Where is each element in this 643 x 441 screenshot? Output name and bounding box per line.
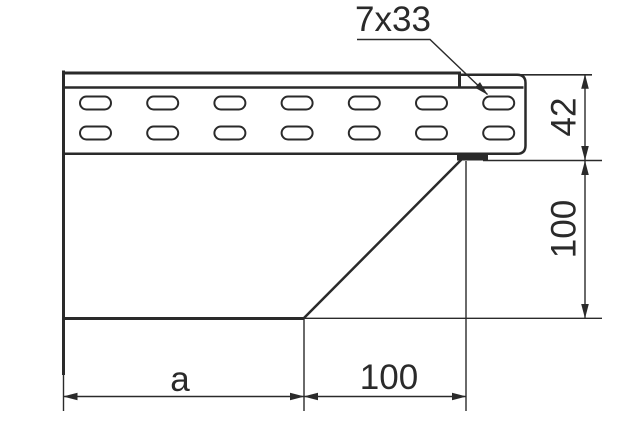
dim-a-label: a	[170, 360, 190, 399]
perforated-rail	[62, 73, 592, 161]
slot	[147, 127, 178, 140]
slot	[349, 97, 380, 110]
taper-edge	[304, 159, 462, 318]
dimension-a: a	[64, 360, 305, 399]
slot	[416, 127, 447, 140]
dim-42-label: 42	[544, 98, 583, 137]
slot	[214, 97, 245, 110]
dim-100-horizontal-label: 100	[360, 358, 418, 397]
slot	[483, 97, 514, 110]
slot	[349, 127, 380, 140]
slot-callout-label: 7x33	[355, 0, 431, 39]
slot	[80, 97, 111, 110]
reducer-drawing: 42 100 a 100 7x33	[0, 0, 643, 441]
slot-callout: 7x33	[355, 0, 487, 95]
slot	[214, 127, 245, 140]
slot-grid	[80, 97, 514, 140]
dimension-body-height: 100	[544, 161, 585, 318]
dimension-rail-height: 42	[544, 75, 585, 160]
dimension-100-horizontal: 100	[304, 358, 466, 397]
slot	[416, 97, 447, 110]
dim-100-vertical-label: 100	[544, 200, 583, 258]
rail-top-edge	[62, 73, 460, 87]
slot	[282, 127, 313, 140]
reducer-body	[62, 71, 462, 376]
slot	[483, 127, 514, 140]
technical-drawing-page: 42 100 a 100 7x33	[0, 0, 643, 441]
slot	[147, 97, 178, 110]
slot	[80, 127, 111, 140]
slot	[282, 97, 313, 110]
extension-lines	[64, 161, 603, 412]
